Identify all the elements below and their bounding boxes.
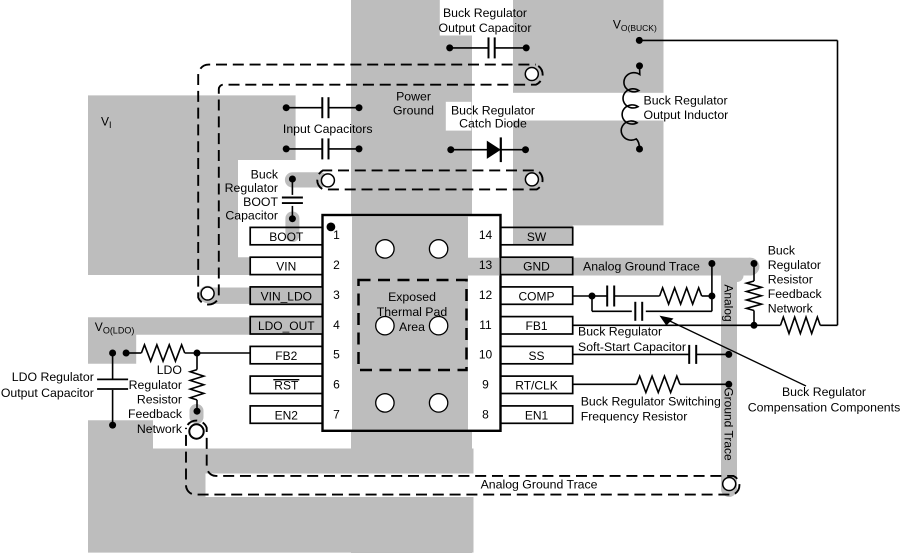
- svg-text:Input Capacitors: Input Capacitors: [283, 122, 373, 136]
- svg-text:Output Capacitor: Output Capacitor: [1, 386, 94, 400]
- svg-text:Capacitor: Capacitor: [225, 209, 278, 223]
- svg-text:EN2: EN2: [275, 408, 299, 422]
- svg-text:EN1: EN1: [525, 408, 549, 422]
- svg-text:COMP: COMP: [519, 289, 555, 303]
- svg-text:Feedback: Feedback: [128, 407, 183, 421]
- svg-text:Output Inductor: Output Inductor: [644, 108, 729, 122]
- svg-text:11: 11: [479, 318, 492, 332]
- svg-text:LDO: LDO: [157, 363, 182, 377]
- svg-text:Buck Regulator: Buck Regulator: [578, 325, 662, 339]
- svg-text:RST: RST: [274, 379, 299, 393]
- svg-text:Regulator: Regulator: [768, 258, 821, 272]
- svg-text:LDO Regulator: LDO Regulator: [12, 370, 94, 384]
- svg-text:6: 6: [333, 378, 340, 392]
- svg-text:8: 8: [482, 408, 489, 422]
- svg-text:Regulator: Regulator: [225, 181, 278, 195]
- svg-text:Area: Area: [399, 320, 425, 334]
- svg-text:Analog Ground Trace: Analog Ground Trace: [481, 477, 598, 491]
- svg-text:GND: GND: [523, 260, 550, 274]
- svg-text:Network: Network: [768, 301, 814, 315]
- svg-text:BOOT: BOOT: [243, 195, 278, 209]
- svg-text:FB1: FB1: [525, 319, 547, 333]
- svg-text:2: 2: [333, 258, 340, 272]
- svg-text:Buck Regulator: Buck Regulator: [644, 94, 728, 108]
- svg-text:9: 9: [482, 378, 489, 392]
- svg-text:Frequency Resistor: Frequency Resistor: [581, 409, 688, 423]
- svg-text:12: 12: [479, 288, 493, 302]
- svg-text:Catch Diode: Catch Diode: [459, 117, 527, 131]
- svg-text:7: 7: [333, 408, 340, 422]
- svg-text:Feedback: Feedback: [768, 287, 823, 301]
- svg-text:Ground: Ground: [393, 104, 434, 118]
- svg-text:3: 3: [333, 288, 340, 302]
- svg-text:Resistor: Resistor: [768, 273, 813, 287]
- svg-text:13: 13: [479, 258, 493, 272]
- svg-text:4: 4: [333, 318, 340, 332]
- svg-text:10: 10: [479, 348, 493, 362]
- svg-text:RT/CLK: RT/CLK: [515, 379, 557, 393]
- svg-text:Soft-Start Capacitor: Soft-Start Capacitor: [578, 340, 686, 354]
- svg-text:Analog Ground Trace: Analog Ground Trace: [583, 260, 700, 274]
- svg-text:Buck Regulator: Buck Regulator: [782, 385, 866, 399]
- svg-text:Analog: Analog: [722, 284, 736, 321]
- svg-text:Buck Regulator: Buck Regulator: [443, 6, 527, 20]
- svg-text:Buck: Buck: [251, 167, 279, 181]
- svg-text:Compensation Components: Compensation Components: [748, 401, 900, 415]
- svg-text:LDO_OUT: LDO_OUT: [258, 319, 315, 333]
- svg-text:Resistor: Resistor: [137, 393, 182, 407]
- svg-text:SW: SW: [527, 230, 547, 244]
- svg-text:VIN: VIN: [276, 260, 296, 274]
- svg-text:VIN_LDO: VIN_LDO: [261, 289, 312, 303]
- svg-text:Buck Regulator Switching: Buck Regulator Switching: [581, 394, 721, 408]
- svg-text:Regulator: Regulator: [129, 378, 182, 392]
- svg-text:Exposed: Exposed: [388, 290, 436, 304]
- svg-text:Buck Regulator: Buck Regulator: [451, 103, 535, 117]
- svg-text:5: 5: [333, 348, 340, 362]
- svg-text:Buck: Buck: [768, 244, 796, 258]
- svg-text:Ground Trace: Ground Trace: [722, 387, 736, 461]
- svg-text:Power: Power: [396, 89, 431, 103]
- svg-text:BOOT: BOOT: [269, 230, 304, 244]
- svg-text:1: 1: [333, 228, 340, 242]
- svg-text:FB2: FB2: [275, 349, 297, 363]
- svg-text:Output Capacitor: Output Capacitor: [439, 21, 532, 35]
- svg-text:Network: Network: [137, 422, 183, 436]
- svg-text:SS: SS: [528, 349, 544, 363]
- svg-text:14: 14: [479, 228, 493, 242]
